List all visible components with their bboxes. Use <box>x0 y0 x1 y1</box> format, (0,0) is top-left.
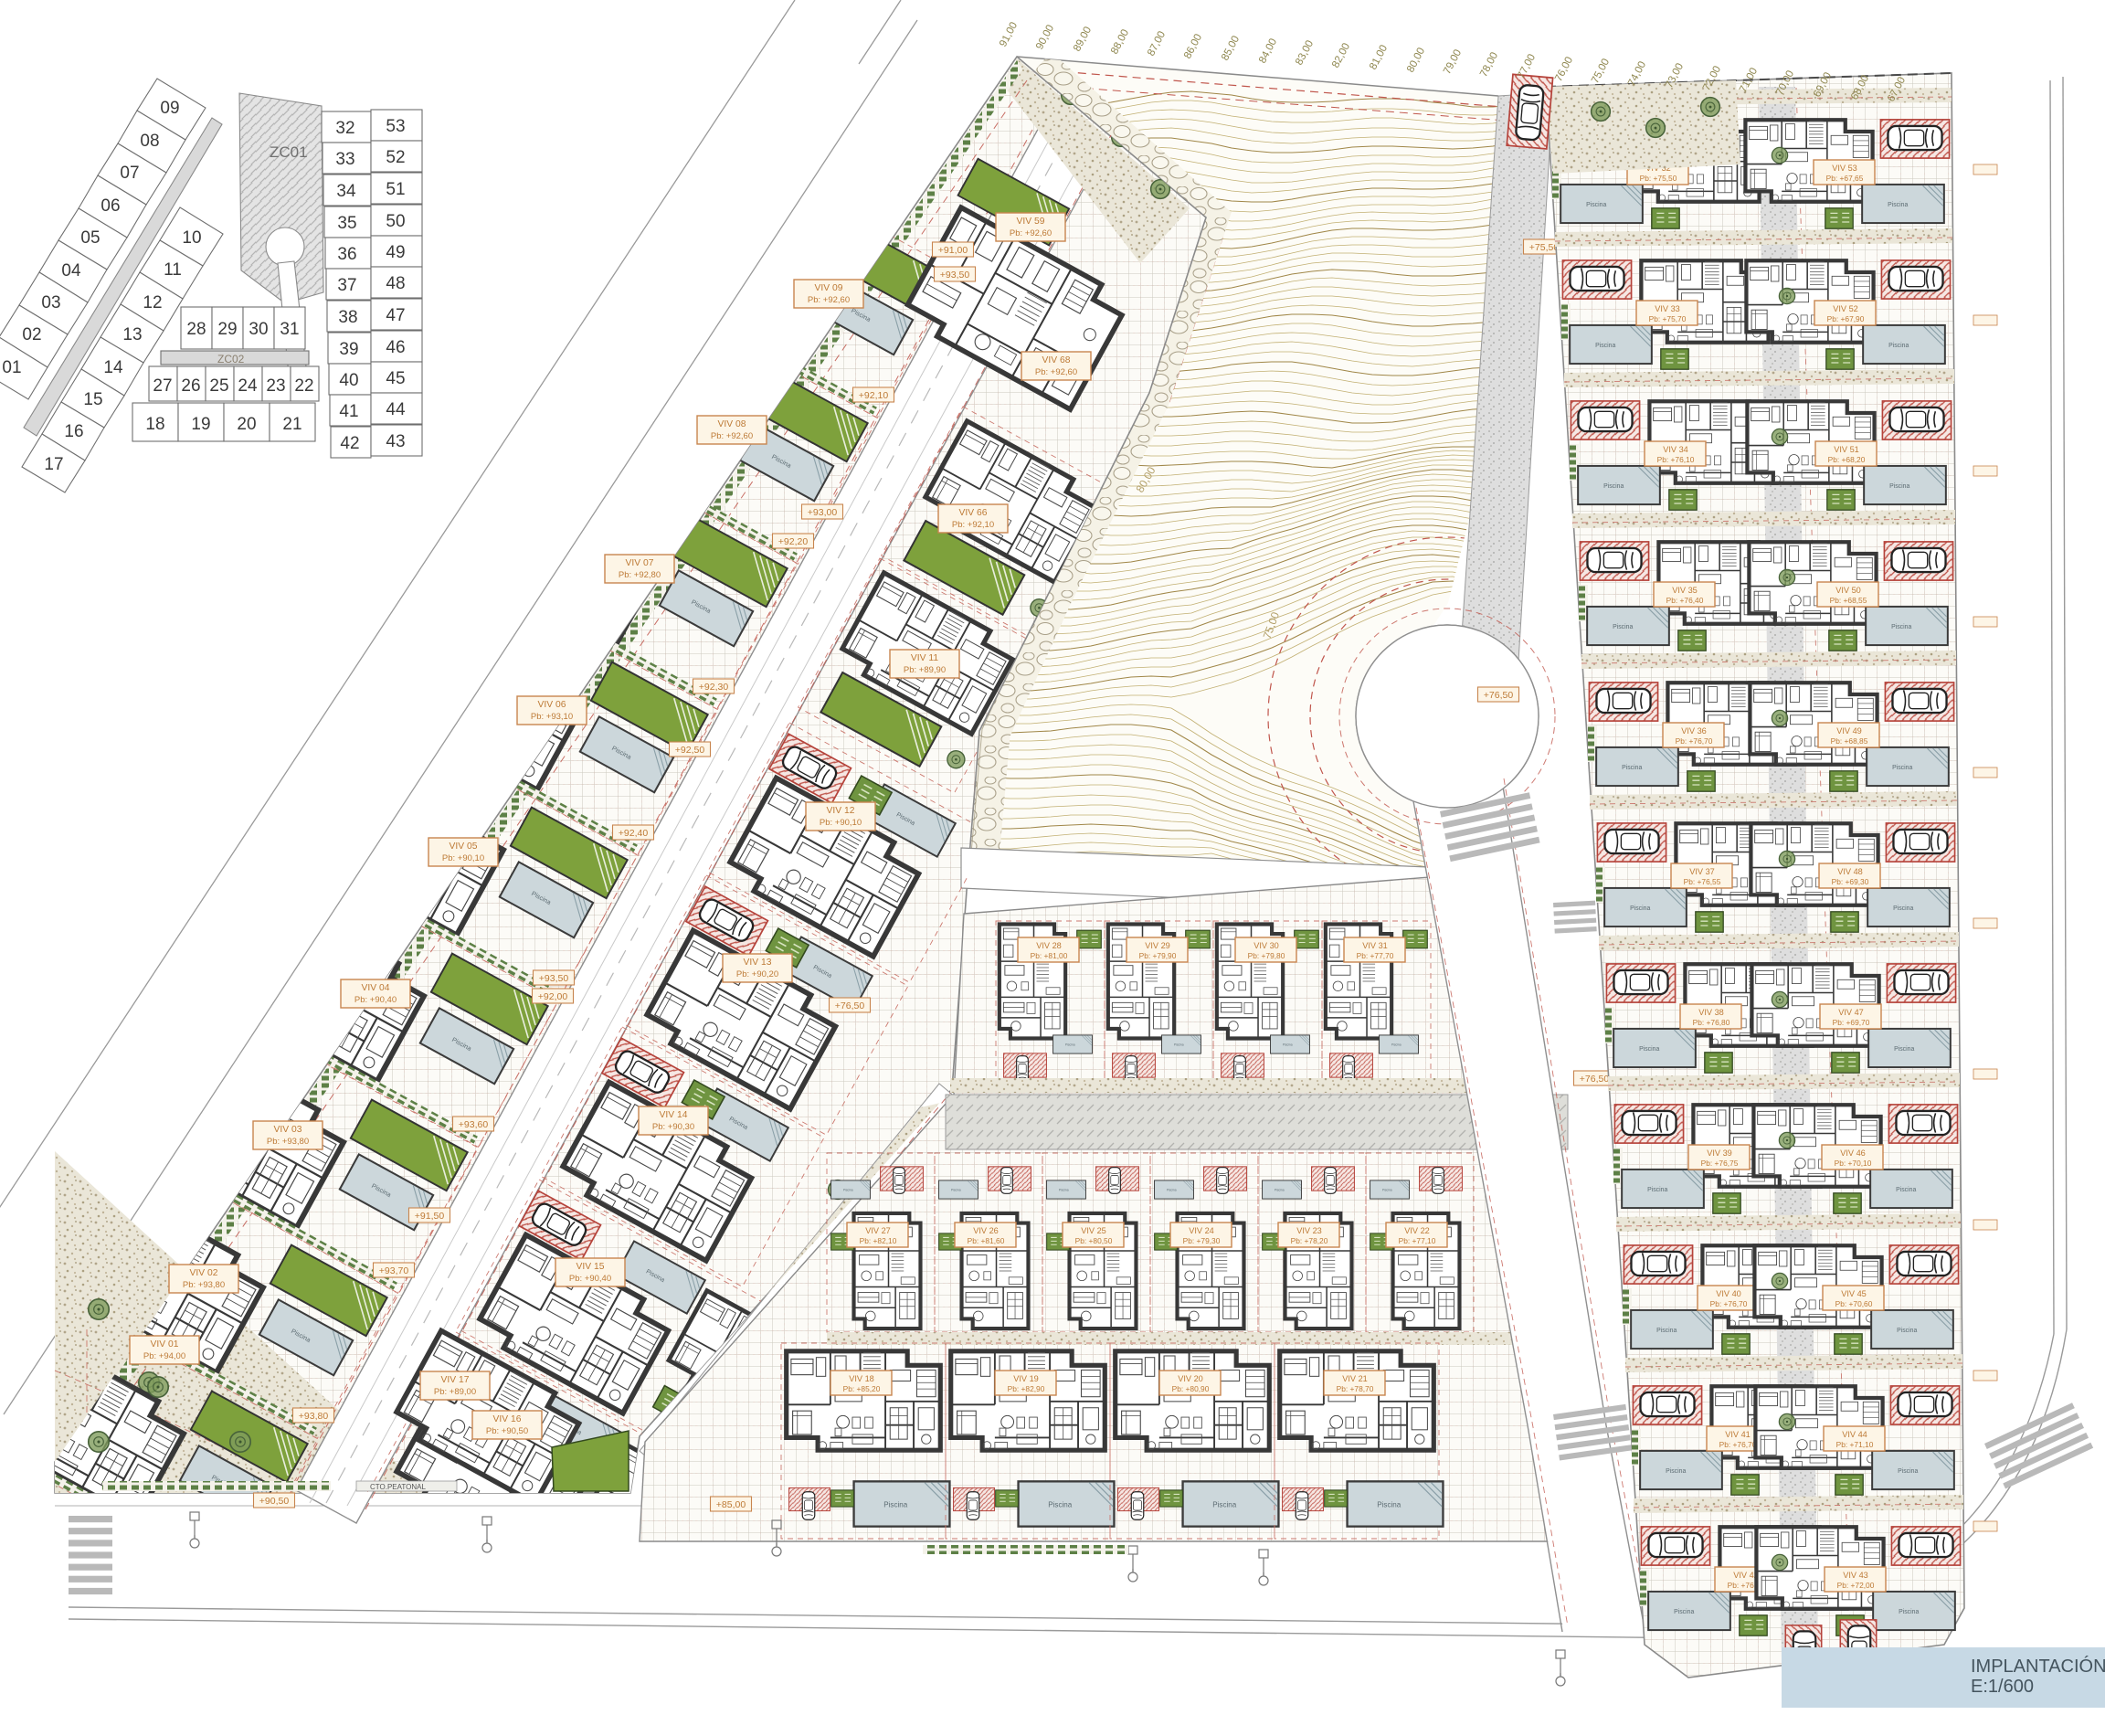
svg-text:Pb: +76,40: Pb: +76,40 <box>1666 596 1704 605</box>
svg-text:03: 03 <box>41 293 60 312</box>
svg-text:Pb: +69,30: Pb: +69,30 <box>1832 877 1869 886</box>
svg-text:Pb: +90,30: Pb: +90,30 <box>652 1122 694 1132</box>
svg-text:24: 24 <box>238 376 258 396</box>
svg-text:+93,80: +93,80 <box>299 1411 329 1422</box>
svg-text:Pb: +89,90: Pb: +89,90 <box>904 665 946 675</box>
svg-text:Pb: +82,90: Pb: +82,90 <box>1008 1384 1045 1393</box>
svg-text:46: 46 <box>386 338 405 357</box>
svg-text:VIV 23: VIV 23 <box>1296 1226 1322 1235</box>
svg-text:Pb: +76,75: Pb: +76,75 <box>1701 1159 1739 1168</box>
svg-text:+93,60: +93,60 <box>459 1119 489 1130</box>
svg-text:VIV 20: VIV 20 <box>1178 1374 1203 1383</box>
svg-text:Pb: +68,85: Pb: +68,85 <box>1831 736 1868 746</box>
svg-text:VIV 44: VIV 44 <box>1842 1430 1867 1439</box>
svg-text:01: 01 <box>2 358 21 377</box>
svg-text:32: 32 <box>335 119 354 138</box>
svg-text:08: 08 <box>140 132 159 151</box>
svg-text:Pb: +92,80: Pb: +92,80 <box>619 570 661 580</box>
svg-text:Pb: +70,60: Pb: +70,60 <box>1835 1299 1873 1308</box>
svg-text:09: 09 <box>160 99 179 118</box>
svg-text:VIV 28: VIV 28 <box>1036 941 1062 950</box>
svg-text:Pb: +76,10: Pb: +76,10 <box>1657 455 1695 464</box>
svg-text:Pb: +67,90: Pb: +67,90 <box>1827 314 1865 323</box>
svg-text:11: 11 <box>164 260 182 280</box>
svg-text:VIV 35: VIV 35 <box>1672 586 1698 595</box>
svg-text:VIV 34: VIV 34 <box>1663 445 1688 454</box>
svg-text:Pb: +92,60: Pb: +92,60 <box>1035 367 1077 377</box>
svg-text:VIV 45: VIV 45 <box>1841 1289 1867 1298</box>
svg-text:12: 12 <box>143 293 162 312</box>
svg-text:+93,50: +93,50 <box>940 270 970 281</box>
svg-text:VIV 17: VIV 17 <box>441 1375 470 1385</box>
svg-text:+93,00: +93,00 <box>808 507 838 518</box>
svg-text:VIV 18: VIV 18 <box>849 1374 874 1383</box>
svg-text:VIV 49: VIV 49 <box>1836 726 1862 736</box>
svg-text:Pb: +92,60: Pb: +92,60 <box>711 431 753 441</box>
svg-text:Pb: +90,10: Pb: +90,10 <box>820 818 862 828</box>
svg-text:Pb: +80,50: Pb: +80,50 <box>1075 1236 1113 1245</box>
svg-text:04: 04 <box>61 261 81 281</box>
svg-text:VIV 03: VIV 03 <box>274 1125 302 1135</box>
svg-text:06: 06 <box>100 196 120 216</box>
svg-text:25: 25 <box>209 376 228 396</box>
svg-text:Pb: +68,20: Pb: +68,20 <box>1828 455 1866 464</box>
svg-text:52: 52 <box>386 148 405 167</box>
svg-text:Pb: +92,60: Pb: +92,60 <box>1010 228 1052 238</box>
svg-text:51: 51 <box>386 180 405 199</box>
svg-text:18: 18 <box>145 415 164 434</box>
svg-text:+92,00: +92,00 <box>538 991 568 1002</box>
svg-text:CTO.PEATONAL: CTO.PEATONAL <box>370 1483 426 1491</box>
svg-text:49: 49 <box>386 243 405 262</box>
svg-text:48: 48 <box>386 274 405 293</box>
svg-text:Pb: +90,40: Pb: +90,40 <box>354 995 397 1005</box>
svg-text:VIV 09: VIV 09 <box>815 283 843 293</box>
svg-text:Pb: +81,00: Pb: +81,00 <box>1031 951 1068 960</box>
svg-text:Pb: +90,10: Pb: +90,10 <box>442 853 484 863</box>
svg-text:VIV 66: VIV 66 <box>959 508 988 518</box>
svg-text:VIV 48: VIV 48 <box>1837 867 1863 876</box>
svg-text:19: 19 <box>191 415 210 434</box>
svg-text:VIV 19: VIV 19 <box>1013 1374 1039 1383</box>
svg-text:VIV 59: VIV 59 <box>1017 217 1045 227</box>
svg-text:VIV 38: VIV 38 <box>1698 1008 1724 1017</box>
svg-text:10: 10 <box>182 228 201 248</box>
svg-text:VIV 43: VIV 43 <box>1843 1571 1868 1580</box>
svg-text:VIV 46: VIV 46 <box>1840 1149 1866 1158</box>
svg-text:Pb: +77,70: Pb: +77,70 <box>1357 951 1394 960</box>
svg-text:VIV 33: VIV 33 <box>1655 304 1680 313</box>
svg-text:28: 28 <box>186 320 206 339</box>
svg-text:IMPLANTACIÓN P: IMPLANTACIÓN P <box>1971 1656 2105 1677</box>
svg-text:45: 45 <box>386 369 405 388</box>
svg-text:Pb: +77,10: Pb: +77,10 <box>1399 1236 1436 1245</box>
svg-text:VIV 05: VIV 05 <box>450 842 478 852</box>
svg-text:VIV 53: VIV 53 <box>1832 164 1857 173</box>
svg-text:53: 53 <box>386 117 405 136</box>
svg-text:Pb: +79,30: Pb: +79,30 <box>1183 1236 1221 1245</box>
svg-text:VIV 27: VIV 27 <box>865 1226 891 1235</box>
svg-text:VIV 13: VIV 13 <box>744 958 772 968</box>
svg-text:Pb: +72,00: Pb: +72,00 <box>1837 1581 1875 1590</box>
svg-text:Pb: +93,10: Pb: +93,10 <box>531 712 573 722</box>
svg-text:VIV 08: VIV 08 <box>718 419 746 429</box>
svg-text:+92,20: +92,20 <box>778 536 809 547</box>
svg-text:37: 37 <box>337 276 356 295</box>
svg-text:Pb: +70,10: Pb: +70,10 <box>1835 1159 1872 1168</box>
svg-text:20: 20 <box>237 415 256 434</box>
svg-text:+92,40: +92,40 <box>619 828 649 839</box>
svg-text:43: 43 <box>386 432 405 451</box>
svg-text:VIV 26: VIV 26 <box>973 1226 999 1235</box>
svg-text:Pb: +90,50: Pb: +90,50 <box>486 1426 528 1436</box>
svg-text:Pb: +93,80: Pb: +93,80 <box>183 1280 225 1290</box>
svg-text:VIV 29: VIV 29 <box>1145 941 1170 950</box>
svg-text:ZC02: ZC02 <box>217 353 245 365</box>
svg-text:Pb: +79,80: Pb: +79,80 <box>1248 951 1285 960</box>
svg-text:VIV 36: VIV 36 <box>1681 726 1707 736</box>
svg-text:26: 26 <box>181 376 200 396</box>
svg-text:VIV 31: VIV 31 <box>1362 941 1388 950</box>
svg-text:Pb: +71,10: Pb: +71,10 <box>1836 1440 1874 1449</box>
svg-text:15: 15 <box>83 390 102 409</box>
svg-text:29: 29 <box>217 320 237 339</box>
svg-text:VIV 04: VIV 04 <box>362 983 390 993</box>
svg-text:50: 50 <box>386 212 405 231</box>
svg-text:05: 05 <box>80 228 100 248</box>
svg-text:VIV 25: VIV 25 <box>1081 1226 1106 1235</box>
svg-text:+76,50: +76,50 <box>835 1000 865 1011</box>
svg-text:23: 23 <box>266 376 285 396</box>
svg-text:33: 33 <box>335 150 354 169</box>
svg-text:Pb: +90,20: Pb: +90,20 <box>736 969 778 979</box>
svg-text:31: 31 <box>280 320 299 339</box>
svg-text:VIV 30: VIV 30 <box>1253 941 1279 950</box>
svg-text:VIV 47: VIV 47 <box>1838 1008 1864 1017</box>
svg-text:27: 27 <box>153 376 172 396</box>
svg-text:Pb: +81,60: Pb: +81,60 <box>968 1236 1005 1245</box>
svg-text:VIV 14: VIV 14 <box>660 1110 688 1120</box>
svg-text:+75,50: +75,50 <box>1529 242 1560 253</box>
svg-text:22: 22 <box>294 376 313 396</box>
svg-text:17: 17 <box>44 455 63 474</box>
svg-text:Pb: +76,70: Pb: +76,70 <box>1676 736 1713 746</box>
svg-text:Pb: +67,65: Pb: +67,65 <box>1826 174 1864 183</box>
svg-text:VIV 01: VIV 01 <box>151 1339 179 1350</box>
svg-text:+90,50: +90,50 <box>259 1496 290 1507</box>
svg-text:+92,30: +92,30 <box>699 682 729 693</box>
svg-text:35: 35 <box>337 214 356 233</box>
svg-text:40: 40 <box>339 371 358 390</box>
svg-text:VIV 68: VIV 68 <box>1042 355 1071 365</box>
svg-text:VIV 39: VIV 39 <box>1707 1149 1732 1158</box>
svg-text:16: 16 <box>64 422 83 441</box>
svg-text:Pb: +79,90: Pb: +79,90 <box>1139 951 1177 960</box>
svg-text:+93,50: +93,50 <box>539 973 569 984</box>
svg-text:47: 47 <box>386 306 405 325</box>
svg-text:13: 13 <box>122 325 142 344</box>
svg-text:36: 36 <box>337 245 356 264</box>
svg-text:42: 42 <box>340 434 359 453</box>
svg-text:Pb: +85,20: Pb: +85,20 <box>843 1384 881 1393</box>
svg-text:+91,00: +91,00 <box>938 245 968 256</box>
svg-text:Pb: +78,20: Pb: +78,20 <box>1291 1236 1328 1245</box>
svg-text:VIV 11: VIV 11 <box>911 653 938 663</box>
svg-text:VIV 02: VIV 02 <box>190 1268 218 1278</box>
svg-text:Pb: +93,80: Pb: +93,80 <box>267 1137 309 1147</box>
svg-text:30: 30 <box>249 320 268 339</box>
svg-text:VIV 41: VIV 41 <box>1725 1430 1751 1439</box>
svg-text:Pb: +69,70: Pb: +69,70 <box>1833 1018 1870 1027</box>
svg-text:07: 07 <box>120 164 139 183</box>
svg-text:14: 14 <box>103 358 123 377</box>
svg-text:Pb: +76,80: Pb: +76,80 <box>1693 1018 1730 1027</box>
svg-text:02: 02 <box>22 325 41 344</box>
svg-text:VIV 15: VIV 15 <box>576 1262 605 1272</box>
svg-text:+91,50: +91,50 <box>415 1211 445 1222</box>
svg-text:+76,50: +76,50 <box>1484 690 1514 701</box>
svg-text:+93,70: +93,70 <box>379 1265 409 1276</box>
svg-text:Pb: +78,70: Pb: +78,70 <box>1337 1384 1374 1393</box>
svg-text:Pb: +89,00: Pb: +89,00 <box>434 1387 476 1397</box>
svg-text:VIV 22: VIV 22 <box>1404 1226 1430 1235</box>
svg-text:VIV 12: VIV 12 <box>827 806 855 816</box>
svg-text:E:1/600: E:1/600 <box>1971 1677 2034 1697</box>
svg-text:VIV 51: VIV 51 <box>1834 445 1859 454</box>
svg-text:44: 44 <box>386 400 406 419</box>
svg-text:VIV 06: VIV 06 <box>538 700 566 710</box>
svg-text:+92,50: +92,50 <box>675 745 705 756</box>
svg-text:Pb: +75,50: Pb: +75,50 <box>1640 174 1677 183</box>
svg-text:Pb: +90,40: Pb: +90,40 <box>569 1274 611 1284</box>
svg-text:VIV 50: VIV 50 <box>1835 586 1861 595</box>
svg-text:VIV 24: VIV 24 <box>1189 1226 1214 1235</box>
svg-text:Pb: +76,70: Pb: +76,70 <box>1710 1299 1748 1308</box>
svg-text:VIV 07: VIV 07 <box>626 558 654 568</box>
svg-text:21: 21 <box>282 415 301 434</box>
svg-text:VIV 37: VIV 37 <box>1689 867 1715 876</box>
svg-text:Pb: +76,55: Pb: +76,55 <box>1684 877 1721 886</box>
svg-text:VIV 16: VIV 16 <box>493 1414 522 1424</box>
svg-text:Pb: +92,10: Pb: +92,10 <box>952 520 994 530</box>
svg-text:+85,00: +85,00 <box>716 1499 746 1510</box>
svg-text:VIV 40: VIV 40 <box>1716 1289 1741 1298</box>
svg-text:41: 41 <box>339 402 358 421</box>
svg-text:+76,50: +76,50 <box>1580 1074 1610 1085</box>
svg-text:+92,10: +92,10 <box>859 390 889 401</box>
svg-text:Pb: +92,60: Pb: +92,60 <box>808 295 850 305</box>
svg-text:39: 39 <box>339 340 358 359</box>
svg-text:Pb: +80,90: Pb: +80,90 <box>1172 1384 1210 1393</box>
svg-text:38: 38 <box>338 308 357 327</box>
svg-text:Pb: +76,70: Pb: +76,70 <box>1719 1440 1757 1449</box>
svg-text:Pb: +75,70: Pb: +75,70 <box>1649 314 1687 323</box>
svg-text:ZC01: ZC01 <box>270 143 308 161</box>
svg-text:Pb: +82,10: Pb: +82,10 <box>860 1236 897 1245</box>
svg-text:VIV 52: VIV 52 <box>1833 304 1858 313</box>
svg-text:Pb: +68,55: Pb: +68,55 <box>1830 596 1867 605</box>
svg-text:VIV 21: VIV 21 <box>1342 1374 1368 1383</box>
svg-text:Pb: +94,00: Pb: +94,00 <box>143 1351 185 1361</box>
svg-text:34: 34 <box>336 182 356 201</box>
